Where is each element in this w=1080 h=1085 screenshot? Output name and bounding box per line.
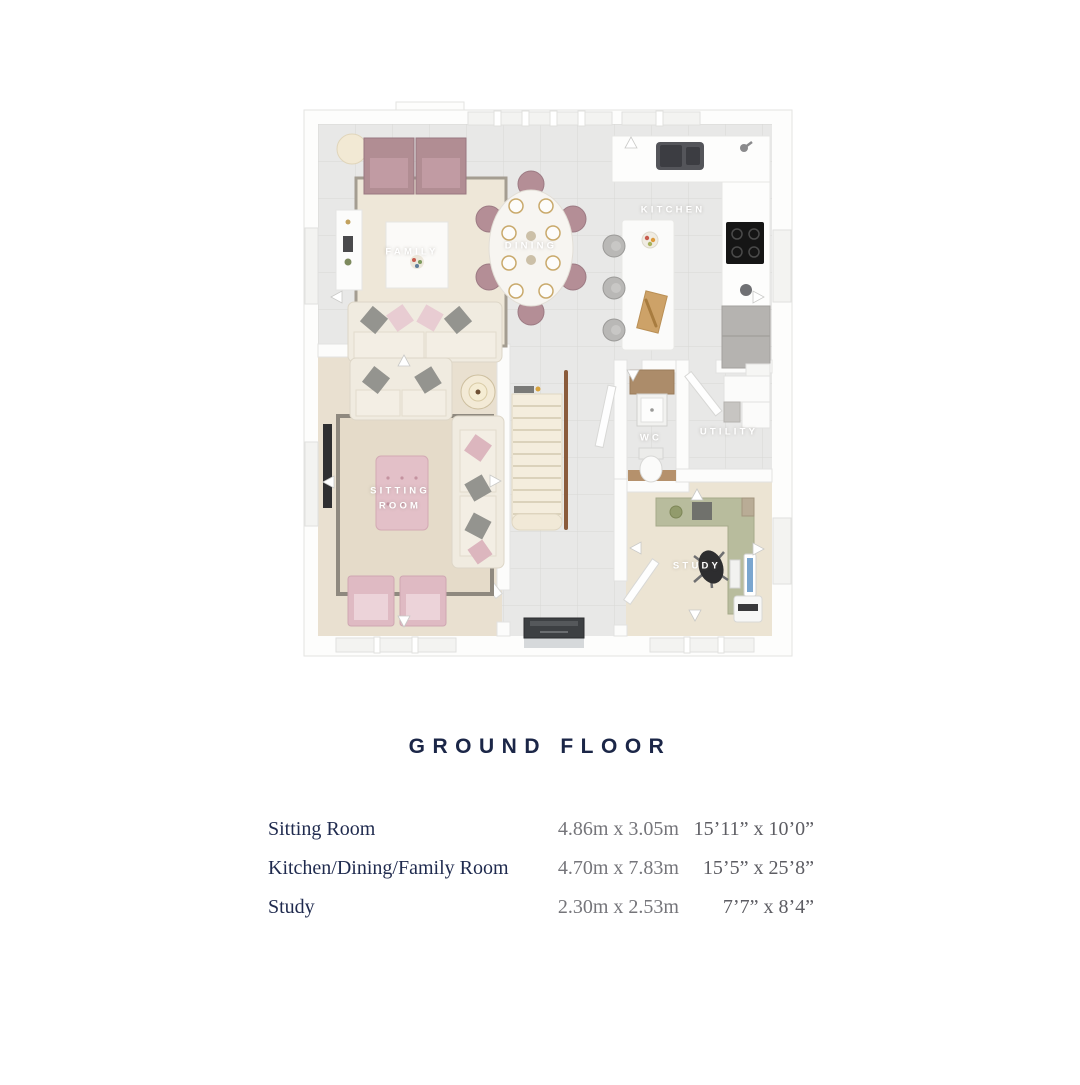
- room-name: Study: [268, 895, 513, 920]
- room-label-study: STUDY: [673, 561, 721, 572]
- room-name: Kitchen/Dining/Family Room: [268, 856, 513, 881]
- printer: [734, 596, 762, 622]
- room-name: Sitting Room: [268, 817, 513, 842]
- kitchen-island: [622, 220, 674, 350]
- metric-dimensions: 4.86m x 3.05m: [513, 817, 679, 842]
- page-title: GROUND FLOOR: [0, 735, 1080, 759]
- staircase: [512, 372, 566, 530]
- console-table: [336, 210, 362, 290]
- family-sofa: [348, 302, 502, 362]
- room-label-utility: UTILITY: [700, 427, 758, 438]
- table-row: Study 2.30m x 2.53m 7’7” x 8’4”: [268, 895, 814, 920]
- side-table: [337, 134, 367, 164]
- room-label-family: FAMILY: [385, 247, 438, 258]
- metric-dimensions: 4.70m x 7.83m: [513, 856, 679, 881]
- kettle: [740, 284, 752, 296]
- metric-dimensions: 2.30m x 2.53m: [513, 895, 679, 920]
- front-door: [524, 618, 584, 648]
- appliance: [722, 306, 770, 368]
- keyboard: [730, 560, 740, 588]
- imperial-dimensions: 15’5” x 25’8”: [679, 856, 814, 881]
- room-label-kitchen: KITCHEN: [641, 205, 706, 216]
- tv: [323, 424, 332, 508]
- island-stools: [603, 235, 625, 341]
- sitting-sofa-top: [350, 358, 452, 420]
- room-label-dining: DINING: [505, 241, 557, 252]
- sitting-sofa-right: [452, 416, 504, 568]
- dimensions-table: Sitting Room 4.86m x 3.05m 15’11” x 10’0…: [268, 817, 814, 934]
- imperial-dimensions: 7’7” x 8’4”: [679, 895, 814, 920]
- room-label-sitting-room: SITTING ROOM: [357, 484, 443, 513]
- table-row: Sitting Room 4.86m x 3.05m 15’11” x 10’0…: [268, 817, 814, 842]
- table-row: Kitchen/Dining/Family Room 4.70m x 7.83m…: [268, 856, 814, 881]
- hob: [726, 222, 764, 264]
- sink: [656, 142, 704, 170]
- imperial-dimensions: 15’11” x 10’0”: [679, 817, 814, 842]
- monitor: [744, 554, 756, 596]
- room-label-wc: WC: [640, 433, 662, 444]
- lamp-table: [461, 375, 495, 409]
